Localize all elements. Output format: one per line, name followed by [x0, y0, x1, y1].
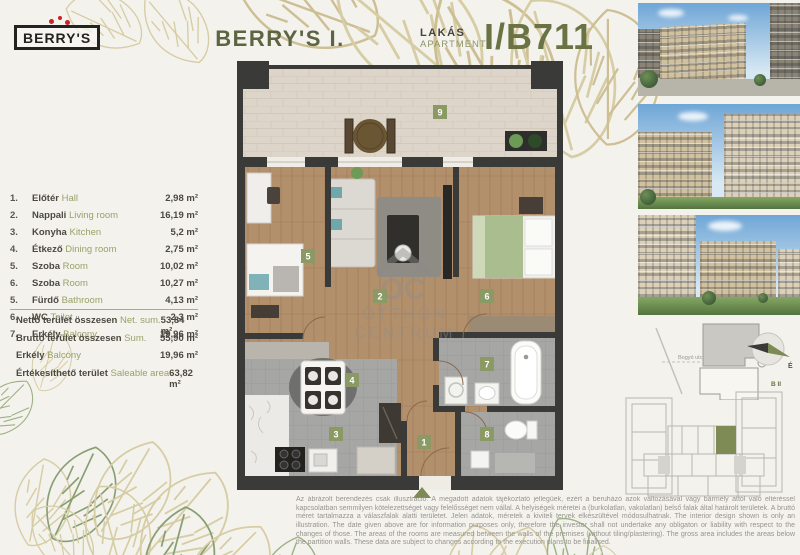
logo-text: BERRY'S: [23, 30, 91, 46]
svg-text:7: 7: [484, 360, 489, 370]
svg-text:6: 6: [484, 292, 489, 302]
building-photo-2: [638, 104, 800, 209]
berry-dot-icon: [58, 16, 62, 20]
summary-row: Nettó terület összesen Net. sum.53,84 m²: [16, 315, 198, 333]
highlighted-unit: [716, 426, 736, 454]
apartment-code: I/B711: [484, 16, 594, 58]
room-row: 5.Szoba Room10,02 m²: [10, 261, 198, 278]
list-divider: [10, 309, 198, 310]
hall-wardrobe: [379, 403, 401, 443]
compass-icon: É: [742, 327, 796, 377]
summary-row: Erkély Balcony19,96 m²: [16, 350, 198, 368]
svg-text:8: 8: [484, 430, 489, 440]
balcony-planter: [505, 131, 547, 151]
building-2-label: B II: [771, 381, 781, 388]
apartment-label-hu: LAKÁS: [420, 27, 465, 39]
room5-wardrobe: [245, 342, 329, 359]
berry-dot-icon: [49, 19, 54, 24]
building-photo-3: [638, 215, 800, 315]
summary-row: Bruttó terület összesen Sum.55,90 m²: [16, 333, 198, 351]
svg-text:OC: OC: [381, 273, 426, 306]
floor-locator: [622, 390, 790, 510]
svg-text:9: 9: [437, 108, 442, 118]
page-title: BERRY'S I.: [150, 26, 410, 52]
svg-text:OTTHON: OTTHON: [362, 306, 448, 323]
bedroom-wardrobe: [469, 316, 557, 332]
room-row: 2.Nappali Living room16,19 m²: [10, 210, 198, 227]
balcony-table: [345, 119, 395, 153]
north-label: É: [788, 361, 793, 370]
area-summary: Nettó terület összesen Net. sum.53,84 m²…: [16, 315, 198, 385]
legal-disclaimer: Az ábrázolt berendezés csak illusztráció…: [296, 496, 795, 548]
summary-row: Értékesíthető terület Saleable area63,82…: [16, 368, 198, 386]
berry-dot-icon: [65, 20, 70, 25]
svg-text:2: 2: [377, 292, 382, 302]
svg-text:5: 5: [305, 252, 310, 262]
room-label-balcony: 9: [433, 105, 447, 119]
apartment-label-en: APARTMENT: [420, 39, 487, 50]
svg-text:4: 4: [349, 376, 354, 386]
room-row: 3.Konyha Kitchen5,2 m²: [10, 227, 198, 244]
svg-text:1: 1: [421, 438, 426, 448]
svg-text:CENTRUM: CENTRUM: [355, 325, 456, 342]
room-row: 1.Előtér Hall2,98 m²: [10, 193, 198, 210]
room-row: 4.Étkező Dining room2,75 m²: [10, 244, 198, 261]
berrys-logo: BERRY'S: [14, 25, 100, 50]
street-label: Bogyó utca: [678, 355, 706, 361]
room-row: 6.Szoba Room10,27 m²: [10, 278, 198, 295]
balcony: 9: [237, 61, 563, 167]
svg-text:3: 3: [333, 430, 338, 440]
floor-plan: 9: [237, 61, 563, 490]
building-photo-1: [638, 3, 800, 96]
brochure-page: BERRY'S BERRY'S I. LAKÁS APARTMENT I/B71…: [0, 0, 800, 555]
